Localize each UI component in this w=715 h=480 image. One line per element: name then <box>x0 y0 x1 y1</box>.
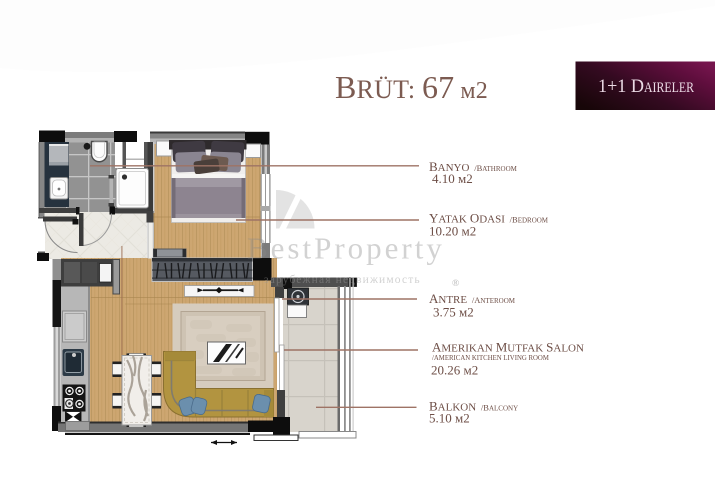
svg-text:/AMERICAN KITCHEN LIVING ROOM: /AMERICAN KITCHEN LIVING ROOM <box>432 355 549 362</box>
svg-text:BestProperty: BestProperty <box>247 231 445 266</box>
svg-text:зарубежная недвижимость: зарубежная недвижимость <box>264 274 421 286</box>
svg-text:3.75 м2: 3.75 м2 <box>433 305 474 320</box>
svg-text:1+1 DAIRELER: 1+1 DAIRELER <box>598 77 694 97</box>
svg-text:AMERIKANMUTFAKSALON: AMERIKANMUTFAKSALON <box>432 340 584 355</box>
svg-text:®: ® <box>452 278 459 289</box>
svg-text:20.26 м2: 20.26 м2 <box>431 363 478 378</box>
svg-text:10.20 м2: 10.20 м2 <box>429 224 476 239</box>
svg-text:5.10 м2: 5.10 м2 <box>429 411 470 426</box>
svg-text:4.10 м2: 4.10 м2 <box>432 171 473 186</box>
